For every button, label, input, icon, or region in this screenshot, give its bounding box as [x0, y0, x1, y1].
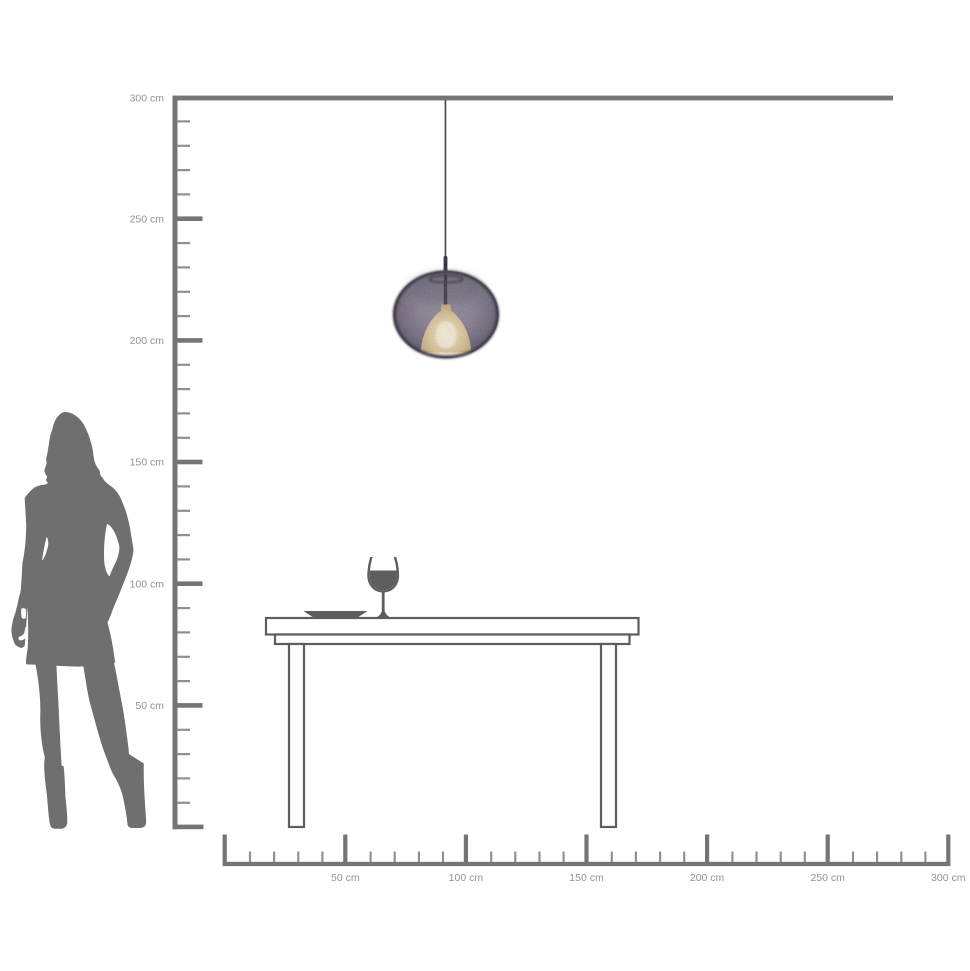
svg-text:250 cm: 250 cm — [130, 214, 165, 226]
svg-text:250 cm: 250 cm — [810, 872, 845, 884]
svg-text:200 cm: 200 cm — [690, 872, 725, 884]
svg-text:50 cm: 50 cm — [331, 872, 360, 884]
svg-text:300 cm: 300 cm — [931, 872, 966, 884]
svg-text:100 cm: 100 cm — [130, 579, 165, 591]
svg-text:150 cm: 150 cm — [130, 457, 165, 469]
svg-text:200 cm: 200 cm — [130, 335, 165, 347]
svg-text:50 cm: 50 cm — [135, 700, 164, 712]
svg-text:150 cm: 150 cm — [569, 872, 604, 884]
svg-text:100 cm: 100 cm — [449, 872, 484, 884]
svg-text:300 cm: 300 cm — [130, 93, 165, 105]
